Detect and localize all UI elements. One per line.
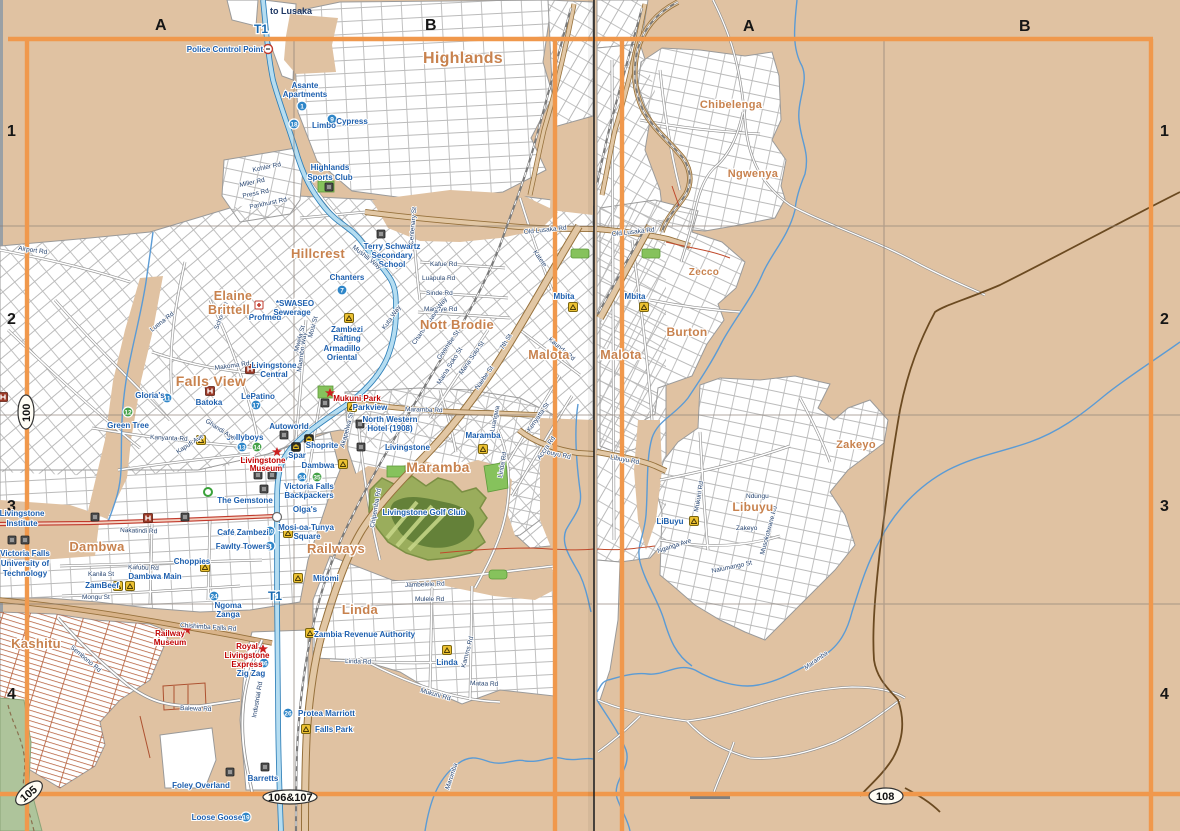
- svg-text:A: A: [743, 18, 755, 35]
- svg-text:18: 18: [290, 121, 298, 128]
- svg-text:Ngoma: Ngoma: [214, 601, 242, 610]
- svg-text:Gloria's: Gloria's: [135, 391, 165, 400]
- svg-text:17: 17: [252, 402, 260, 409]
- svg-text:4: 4: [7, 686, 16, 703]
- svg-text:Oriental: Oriental: [327, 353, 357, 362]
- svg-text:Batoka: Batoka: [196, 398, 223, 407]
- svg-text:Secondary: Secondary: [372, 251, 413, 260]
- svg-text:Mongu St: Mongu St: [82, 594, 110, 601]
- svg-text:Kafue Rd: Kafue Rd: [430, 261, 457, 268]
- svg-text:Railway: Railway: [155, 629, 185, 638]
- svg-text:Luapula Rd: Luapula Rd: [422, 275, 456, 282]
- svg-text:Brittell: Brittell: [208, 303, 250, 317]
- svg-text:Mosi-oa-Tunya: Mosi-oa-Tunya: [278, 523, 334, 532]
- svg-text:A: A: [155, 17, 167, 34]
- svg-text:The Gemstone: The Gemstone: [217, 496, 273, 505]
- svg-text:Mukuni Park: Mukuni Park: [333, 394, 381, 403]
- svg-text:100: 100: [21, 404, 33, 422]
- svg-text:Asante: Asante: [292, 81, 319, 90]
- svg-text:Dambwa Main: Dambwa Main: [128, 572, 181, 581]
- svg-text:Livingstone: Livingstone: [252, 361, 297, 370]
- svg-text:to Lusaka: to Lusaka: [270, 6, 313, 16]
- svg-text:T1: T1: [268, 589, 282, 603]
- svg-text:1: 1: [1160, 123, 1169, 140]
- svg-text:Dambwa: Dambwa: [69, 539, 125, 554]
- svg-text:4: 4: [1160, 686, 1169, 703]
- svg-text:Hotel (1908): Hotel (1908): [367, 424, 413, 433]
- svg-text:Mbita: Mbita: [625, 292, 646, 301]
- svg-text:Green Tree: Green Tree: [107, 421, 149, 430]
- svg-text:Institute: Institute: [6, 519, 38, 528]
- svg-text:Ngwenya: Ngwenya: [728, 168, 779, 180]
- svg-text:Rafting: Rafting: [333, 334, 361, 343]
- svg-text:Limbo: Limbo: [312, 121, 336, 130]
- svg-text:Parkview: Parkview: [353, 403, 388, 412]
- svg-text:Linda: Linda: [436, 658, 458, 667]
- svg-text:Livingstone: Livingstone: [225, 651, 270, 660]
- svg-text:106&107: 106&107: [268, 792, 313, 804]
- svg-text:Nakatindi Rd: Nakatindi Rd: [120, 527, 158, 535]
- svg-text:2: 2: [1160, 311, 1169, 328]
- svg-text:Mataa Rd: Mataa Rd: [470, 680, 499, 688]
- svg-text:Spar: Spar: [288, 451, 306, 460]
- svg-text:34: 34: [298, 474, 306, 481]
- svg-text:Livingstone: Livingstone: [0, 509, 45, 518]
- svg-text:Libuyu: Libuyu: [732, 500, 773, 514]
- svg-text:LePatino: LePatino: [241, 392, 275, 401]
- svg-text:Cypress: Cypress: [336, 117, 368, 126]
- svg-text:Apartments: Apartments: [283, 90, 328, 99]
- svg-text:Armadillo: Armadillo: [324, 344, 361, 353]
- svg-text:*SWASEO: *SWASEO: [276, 299, 314, 308]
- svg-text:Autoworld: Autoworld: [269, 422, 309, 431]
- svg-text:Zanga: Zanga: [216, 610, 240, 619]
- svg-text:Express: Express: [231, 660, 263, 669]
- svg-text:North Western: North Western: [363, 415, 418, 424]
- svg-text:Central: Central: [260, 370, 288, 379]
- svg-text:Square: Square: [293, 532, 321, 541]
- svg-text:Loose Goose: Loose Goose: [192, 813, 243, 822]
- svg-text:Malota: Malota: [600, 348, 642, 362]
- svg-text:12: 12: [124, 409, 132, 416]
- svg-text:Maramba Rd: Maramba Rd: [405, 406, 443, 414]
- svg-text:Linda: Linda: [342, 602, 379, 617]
- svg-text:Zambia Revenue Authority: Zambia Revenue Authority: [314, 630, 416, 639]
- svg-text:Shoprite: Shoprite: [306, 441, 339, 450]
- svg-text:Choppies: Choppies: [174, 557, 211, 566]
- svg-text:Backpackers: Backpackers: [284, 491, 334, 500]
- svg-text:T1: T1: [254, 22, 268, 36]
- svg-text:Malota: Malota: [528, 348, 570, 362]
- svg-text:B: B: [1019, 18, 1031, 35]
- svg-text:108: 108: [876, 791, 894, 803]
- svg-text:Maramba: Maramba: [406, 459, 470, 475]
- svg-text:Zambezi: Zambezi: [331, 325, 363, 334]
- svg-text:Ndungu: Ndungu: [746, 493, 769, 500]
- svg-text:3: 3: [1160, 498, 1169, 515]
- svg-text:Nott Brodie: Nott Brodie: [420, 317, 494, 332]
- svg-text:Burton: Burton: [666, 325, 707, 339]
- svg-text:19: 19: [242, 814, 250, 821]
- svg-text:Museum: Museum: [250, 464, 282, 473]
- svg-text:Highlands: Highlands: [311, 163, 350, 172]
- svg-text:Olga's: Olga's: [293, 505, 318, 514]
- svg-text:1: 1: [300, 103, 304, 110]
- svg-text:Livingstone Golf Club: Livingstone Golf Club: [382, 508, 465, 517]
- svg-text:B: B: [425, 17, 437, 34]
- svg-text:Victoria Falls: Victoria Falls: [0, 549, 50, 558]
- svg-text:Foley Overland: Foley Overland: [172, 781, 230, 790]
- svg-text:Railways: Railways: [307, 541, 365, 556]
- svg-text:Zecco: Zecco: [689, 267, 719, 278]
- svg-text:Protea Marriott: Protea Marriott: [298, 709, 355, 718]
- svg-text:Jambelele Rd: Jambelele Rd: [405, 581, 445, 589]
- svg-text:Kashitu: Kashitu: [11, 636, 61, 651]
- svg-text:7: 7: [340, 287, 344, 294]
- svg-text:Barretts: Barretts: [248, 774, 279, 783]
- svg-text:14: 14: [253, 444, 261, 451]
- svg-text:Falls Park: Falls Park: [315, 725, 353, 734]
- svg-text:26: 26: [284, 710, 292, 717]
- svg-text:Chanters: Chanters: [330, 273, 365, 282]
- svg-text:Museum: Museum: [154, 638, 186, 647]
- svg-text:Zig Zag: Zig Zag: [237, 669, 266, 678]
- svg-text:Police Control Point: Police Control Point: [187, 45, 264, 54]
- svg-text:Zakeyo: Zakeyo: [836, 439, 876, 451]
- svg-text:Kanila St: Kanila St: [88, 571, 114, 578]
- svg-text:35: 35: [313, 474, 321, 481]
- svg-text:13: 13: [238, 444, 246, 451]
- svg-text:Sewerage: Sewerage: [273, 308, 311, 317]
- svg-text:Livingstone: Livingstone: [385, 443, 430, 452]
- svg-text:Elaine: Elaine: [214, 289, 253, 303]
- svg-text:Café Zambezi: Café Zambezi: [217, 528, 269, 537]
- svg-text:Linda Rd: Linda Rd: [345, 658, 372, 666]
- svg-text:Zakeyo: Zakeyo: [736, 525, 758, 532]
- svg-text:Sports Club: Sports Club: [307, 173, 352, 182]
- svg-text:Victoria Falls: Victoria Falls: [284, 482, 334, 491]
- svg-text:University of: University of: [1, 559, 50, 568]
- svg-text:Sinde Rd: Sinde Rd: [426, 290, 453, 297]
- svg-text:Highlands: Highlands: [423, 50, 503, 67]
- svg-text:Technology: Technology: [3, 569, 48, 578]
- svg-text:Mbita: Mbita: [554, 292, 575, 301]
- svg-text:Hillcrest: Hillcrest: [291, 246, 345, 261]
- svg-text:Mitomi: Mitomi: [313, 574, 339, 583]
- svg-text:2: 2: [7, 311, 16, 328]
- svg-text:24: 24: [210, 593, 218, 600]
- svg-text:Royal: Royal: [236, 642, 258, 651]
- svg-text:1: 1: [7, 123, 16, 140]
- svg-text:LiBuyu: LiBuyu: [656, 517, 683, 526]
- svg-text:Kafubu Rd: Kafubu Rd: [128, 564, 159, 572]
- svg-text:Falls View: Falls View: [176, 373, 246, 389]
- svg-text:Mulele Rd: Mulele Rd: [415, 596, 445, 603]
- svg-text:Fawlty Towers: Fawlty Towers: [216, 542, 271, 551]
- svg-text:Balewa Rd: Balewa Rd: [180, 705, 212, 713]
- svg-text:ZamBeef: ZamBeef: [85, 581, 119, 590]
- svg-text:Dambwa: Dambwa: [302, 461, 335, 470]
- svg-text:Chibelenga: Chibelenga: [700, 99, 763, 111]
